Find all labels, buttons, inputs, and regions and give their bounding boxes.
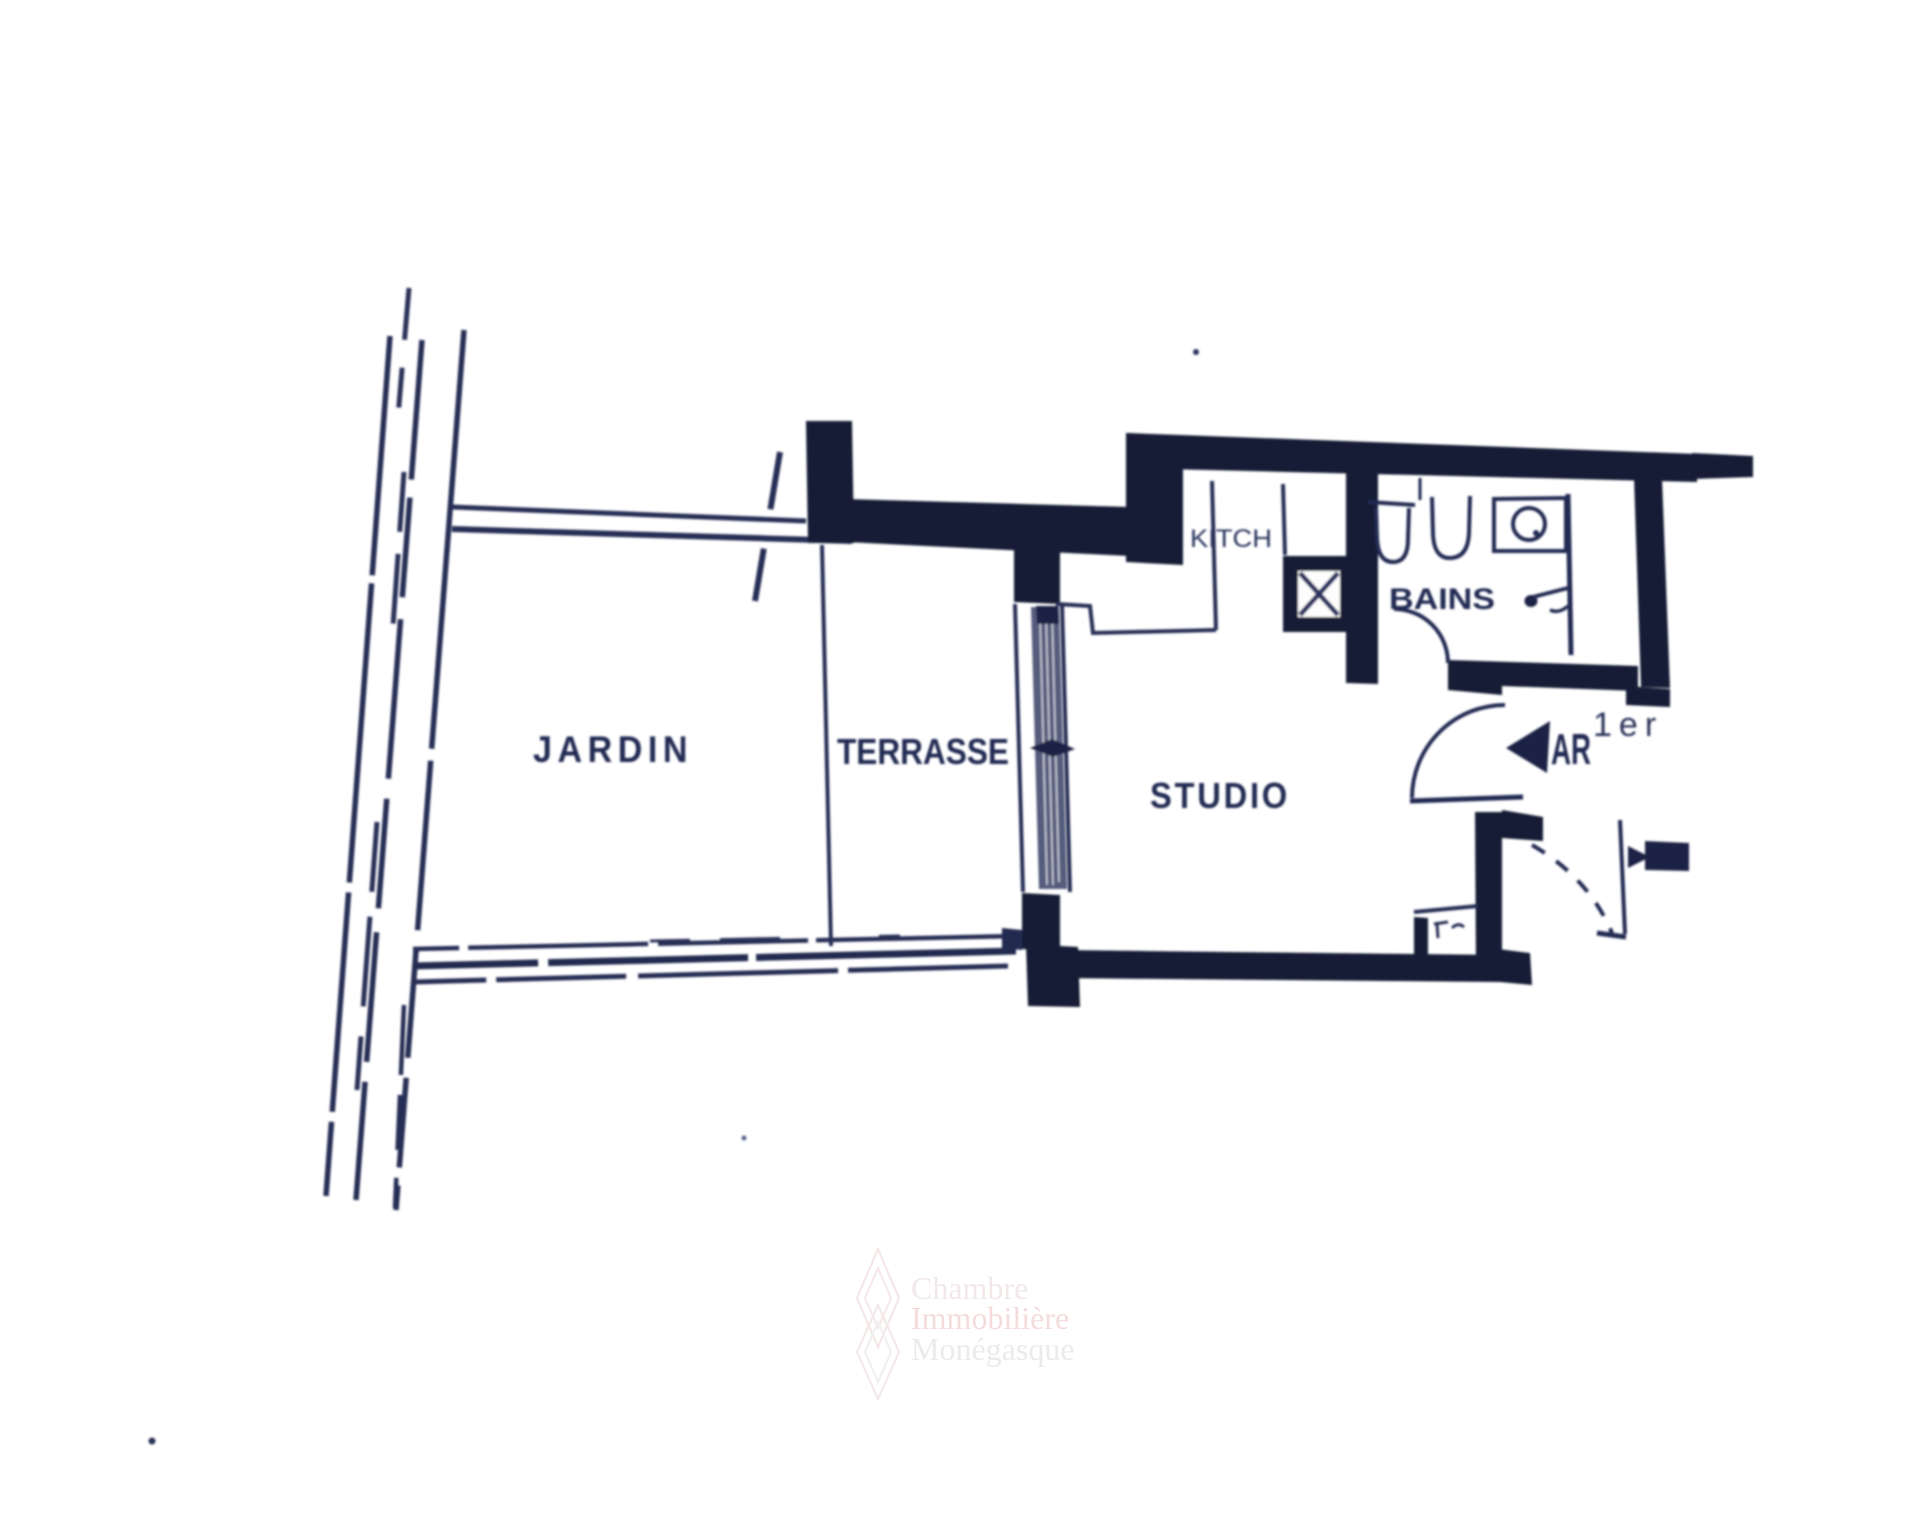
svg-text:Monégasque: Monégasque: [911, 1331, 1075, 1367]
svg-text:1er: 1er: [1593, 706, 1663, 744]
svg-text:AR: AR: [1551, 725, 1591, 774]
svg-text:STUDIO: STUDIO: [1150, 775, 1290, 816]
svg-text:JARDIN: JARDIN: [533, 729, 693, 770]
svg-text:KITCH: KITCH: [1190, 525, 1272, 553]
svg-text:TERRASSE: TERRASSE: [837, 731, 1009, 772]
